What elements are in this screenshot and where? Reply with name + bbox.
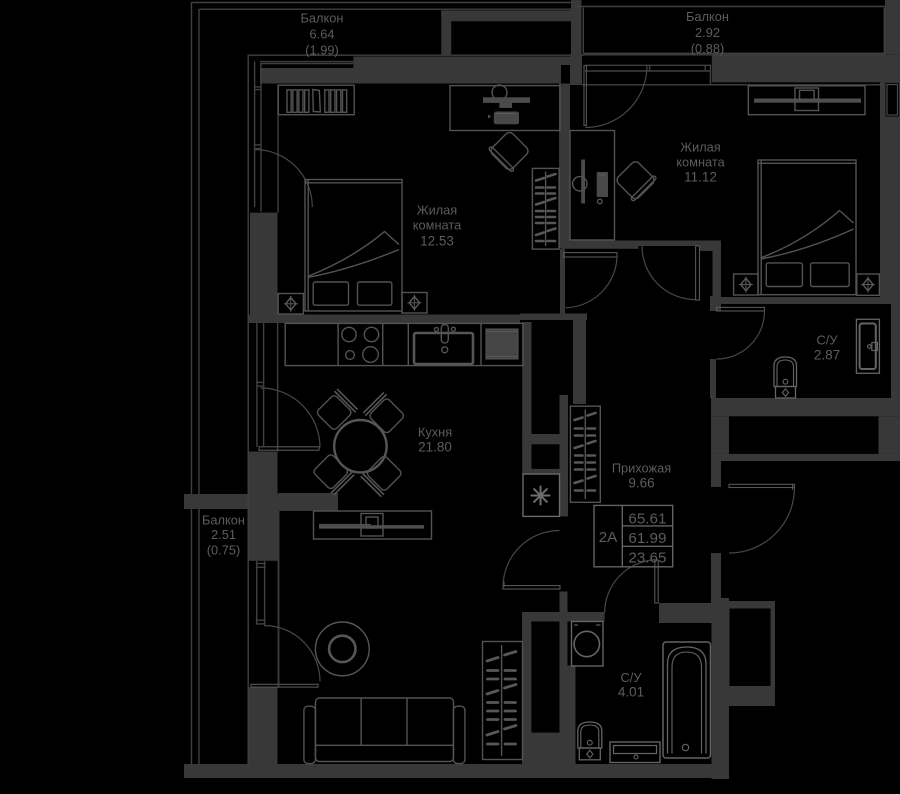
svg-text:комната: комната (676, 155, 725, 170)
svg-text:Жилая: Жилая (417, 203, 458, 218)
svg-text:С/У: С/У (817, 333, 839, 348)
svg-text:Балкон: Балкон (686, 9, 729, 24)
svg-text:2А: 2А (599, 529, 618, 546)
svg-text:Балкон: Балкон (202, 513, 245, 528)
svg-text:Кухня: Кухня (418, 425, 452, 440)
svg-text:(1.99): (1.99) (305, 43, 338, 58)
svg-text:С/У: С/У (621, 670, 643, 685)
svg-text:12.53: 12.53 (420, 234, 454, 249)
svg-text:6.64: 6.64 (310, 27, 335, 42)
svg-text:2.92: 2.92 (695, 25, 720, 40)
svg-text:61.99: 61.99 (628, 530, 666, 547)
svg-text:Прихожая: Прихожая (612, 461, 671, 476)
svg-text:2.51: 2.51 (211, 527, 236, 542)
svg-text:комната: комната (413, 218, 462, 233)
svg-text:Балкон: Балкон (301, 11, 344, 26)
svg-text:2.87: 2.87 (814, 348, 840, 363)
svg-text:9.66: 9.66 (628, 476, 654, 491)
svg-text:(0.75): (0.75) (207, 543, 240, 558)
svg-text:4.01: 4.01 (618, 685, 644, 700)
svg-text:11.12: 11.12 (684, 170, 717, 185)
svg-text:Жилая: Жилая (680, 140, 721, 155)
svg-text:23.65: 23.65 (628, 550, 666, 567)
svg-text:(0.88): (0.88) (691, 41, 724, 56)
svg-text:21.80: 21.80 (418, 440, 452, 455)
svg-text:65.61: 65.61 (628, 511, 666, 528)
